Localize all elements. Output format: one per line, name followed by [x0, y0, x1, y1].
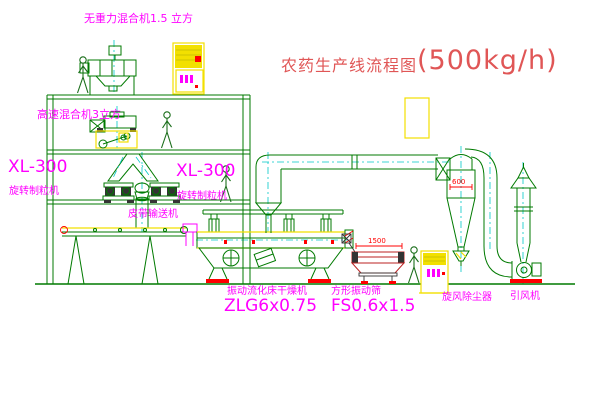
label-gravity-mixer: 无重力混合机1.5 立方	[84, 13, 193, 24]
title-text: 农药生产线流程图	[281, 45, 417, 76]
label-granulator-right-name: 旋转制粒机	[177, 192, 227, 202]
label-granulator-right-model: XL-300	[176, 163, 235, 180]
label-belt-conveyor: 皮带输送机	[128, 210, 178, 220]
label-cyclone: 旋风除尘器	[442, 293, 492, 303]
person-figure-second-floor	[162, 112, 173, 148]
label-sieve-model: FS0.6x1.5	[331, 298, 415, 315]
person-figure-ground	[409, 247, 420, 283]
label-dryer-model: ZLG6x0.75	[224, 298, 317, 315]
equipment-box-upper	[405, 98, 429, 138]
diagram-title: 农药生产线流程图 (500kg/h)	[281, 45, 558, 76]
title-capacity: (500kg/h)	[417, 45, 558, 76]
gravity-mixer	[80, 46, 136, 95]
granulator-right	[149, 183, 180, 203]
control-cabinet-ground	[419, 251, 450, 293]
fluid-bed-dryer	[197, 210, 353, 283]
granulator-left	[103, 183, 134, 203]
platform-structure	[35, 95, 575, 284]
person-figure-top-platform	[78, 57, 89, 93]
splitter-hopper	[108, 154, 158, 181]
flow-diagram-canvas: 农药生产线流程图 (500kg/h) 无重力混合机1.5 立方 高速混合机3立方…	[0, 0, 600, 403]
dimension-sieve-width: 1500	[368, 238, 386, 245]
label-fan: 引风机	[510, 292, 540, 302]
label-granulator-left-name: 旋转制粒机	[9, 187, 59, 197]
granulator-discharge	[135, 183, 149, 228]
dimension-cyclone-diameter: 600	[452, 179, 465, 186]
label-high-speed-mixer: 高速混合机3立方	[37, 109, 121, 120]
belt-conveyor	[61, 224, 198, 284]
dryer-exhaust-duct	[256, 155, 450, 233]
induced-draft-fan	[510, 263, 542, 284]
exhaust-stack	[511, 163, 536, 262]
control-cabinet-top	[173, 43, 204, 94]
label-granulator-left-model: XL-300	[8, 159, 67, 176]
